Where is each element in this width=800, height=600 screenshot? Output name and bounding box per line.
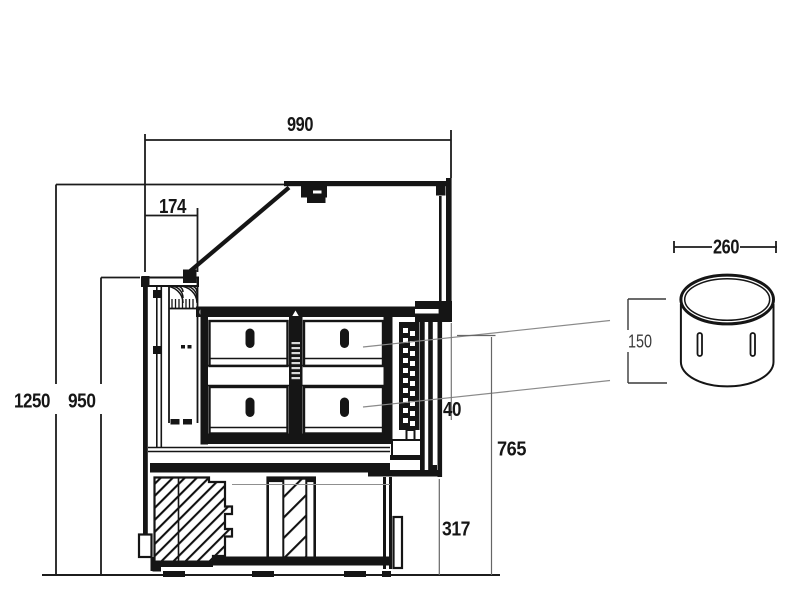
svg-text:765: 765	[497, 439, 526, 461]
svg-text:174: 174	[159, 196, 187, 218]
svg-text:317: 317	[442, 519, 470, 541]
svg-text:40: 40	[443, 399, 461, 421]
svg-text:150: 150	[628, 332, 652, 352]
svg-text:950: 950	[68, 391, 96, 413]
svg-text:1250: 1250	[14, 391, 50, 413]
svg-text:990: 990	[287, 114, 313, 136]
svg-text:260: 260	[713, 237, 739, 259]
